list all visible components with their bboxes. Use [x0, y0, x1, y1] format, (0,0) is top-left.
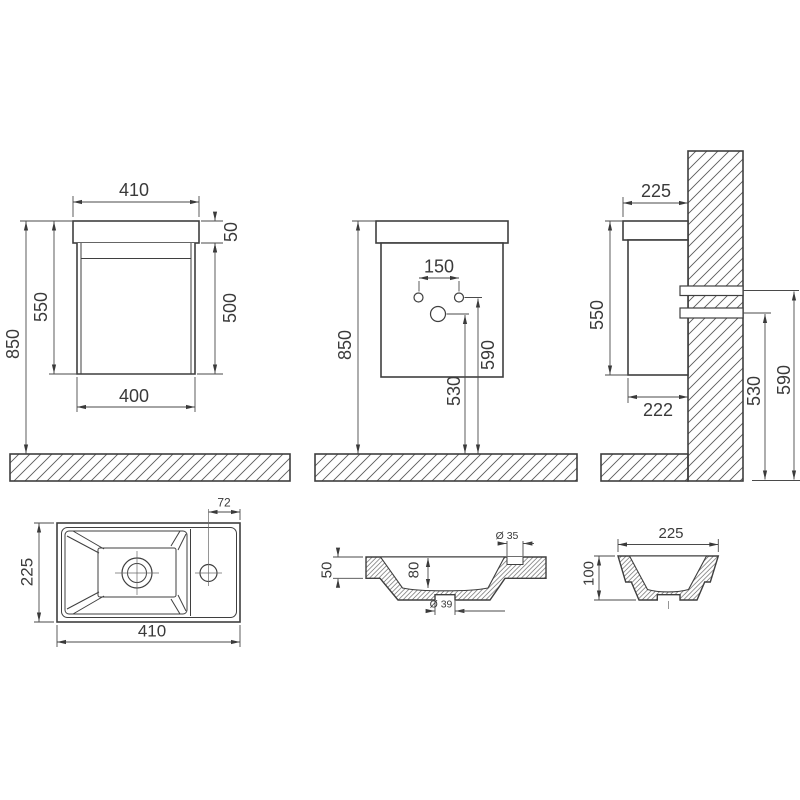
side-view: 225 550 222 530 590	[587, 151, 800, 481]
technical-drawing-page: 410 50 500 550 850 400	[0, 0, 800, 800]
dim-label-drain-hole-diameter: Ø 39	[430, 599, 453, 611]
dim-front-body-height: 500	[197, 244, 240, 375]
floor-section	[601, 454, 688, 481]
dim-section-depth: 225	[618, 525, 718, 552]
dim-label-tap-hole-offset: 72	[217, 496, 231, 510]
water-supply-pipe	[680, 286, 743, 296]
worktop-side	[623, 221, 688, 240]
dim-label-side-worktop-depth: 225	[641, 181, 671, 201]
dim-label-water-supply-height: 590	[478, 340, 498, 370]
dim-label-tap-hole-diameter: Ø 35	[496, 530, 519, 542]
dim-label-section-depth: 225	[658, 525, 683, 542]
dim-label-tap-hole-spacing: 150	[424, 257, 454, 277]
basin-side-section: 225 100	[581, 525, 719, 609]
cabinet-body-front	[77, 243, 195, 374]
dim-tap-hole-diameter: Ø 35	[496, 530, 534, 556]
dim-label-side-cabinet-height: 550	[587, 300, 607, 330]
floor-section	[315, 454, 577, 481]
dim-label-rim-height: 50	[319, 562, 336, 579]
dim-drain-hole-diameter: Ø 39	[427, 599, 505, 616]
dim-front-top-width: 410	[73, 180, 199, 217]
dim-label-side-drain-height: 530	[744, 376, 764, 406]
dim-front-worktop-height: 50	[201, 212, 241, 251]
worktop-front	[376, 221, 508, 243]
vanity-dimensional-drawing: 410 50 500 550 850 400	[0, 0, 800, 800]
dim-label-front-body-width: 400	[119, 386, 149, 406]
dim-label-basin-depth: 225	[18, 558, 37, 586]
dim-front-body-width: 400	[77, 377, 195, 412]
floor-section	[10, 454, 290, 481]
basin-front-section: 50 80 Ø 35 Ø 39	[319, 530, 547, 615]
dim-label-mounting-floor-to-top: 850	[335, 330, 355, 360]
dim-label-front-floor-to-top: 850	[3, 329, 23, 359]
dim-label-basin-width: 410	[138, 622, 166, 641]
dim-label-front-body-height: 500	[220, 293, 240, 323]
dim-side-worktop-depth: 225	[623, 181, 688, 217]
worktop-front	[73, 221, 199, 243]
drain-pipe	[680, 308, 743, 318]
dim-label-front-worktop-height: 50	[221, 222, 241, 242]
tap-hole-recess	[507, 557, 523, 565]
dim-side-body-depth: 222	[628, 378, 688, 420]
dim-side-drain-height: 530	[743, 313, 800, 481]
basin-top-view: 72 225 410	[18, 496, 241, 648]
mounting-view: 150 590 530 850	[315, 221, 577, 481]
dim-mounting-floor-to-top: 850	[335, 221, 376, 454]
dim-basin-depth: 225	[18, 523, 55, 622]
cabinet-body-side	[628, 240, 688, 375]
dim-label-drain-outlet-height: 530	[444, 376, 464, 406]
dim-label-section-height: 100	[581, 561, 598, 586]
dim-front-cabinet-height: 550	[20, 221, 77, 374]
dim-basin-width: 410	[57, 622, 240, 648]
dim-rim-height: 50	[319, 548, 364, 588]
water-supply-hole-left	[414, 293, 423, 302]
dim-label-bowl-depth: 80	[406, 562, 423, 579]
dim-side-cabinet-height: 550	[587, 221, 628, 375]
dim-label-front-cabinet-height: 550	[31, 292, 51, 322]
dim-front-floor-to-top: 850	[3, 222, 26, 454]
water-supply-hole-right	[455, 293, 464, 302]
dim-label-side-water-supply-height: 590	[774, 365, 794, 395]
dim-label-front-top-width: 410	[119, 180, 149, 200]
dim-label-side-body-depth: 222	[643, 400, 673, 420]
front-view: 410 50 500 550 850 400	[3, 180, 290, 481]
drain-outlet-hole	[431, 307, 446, 322]
